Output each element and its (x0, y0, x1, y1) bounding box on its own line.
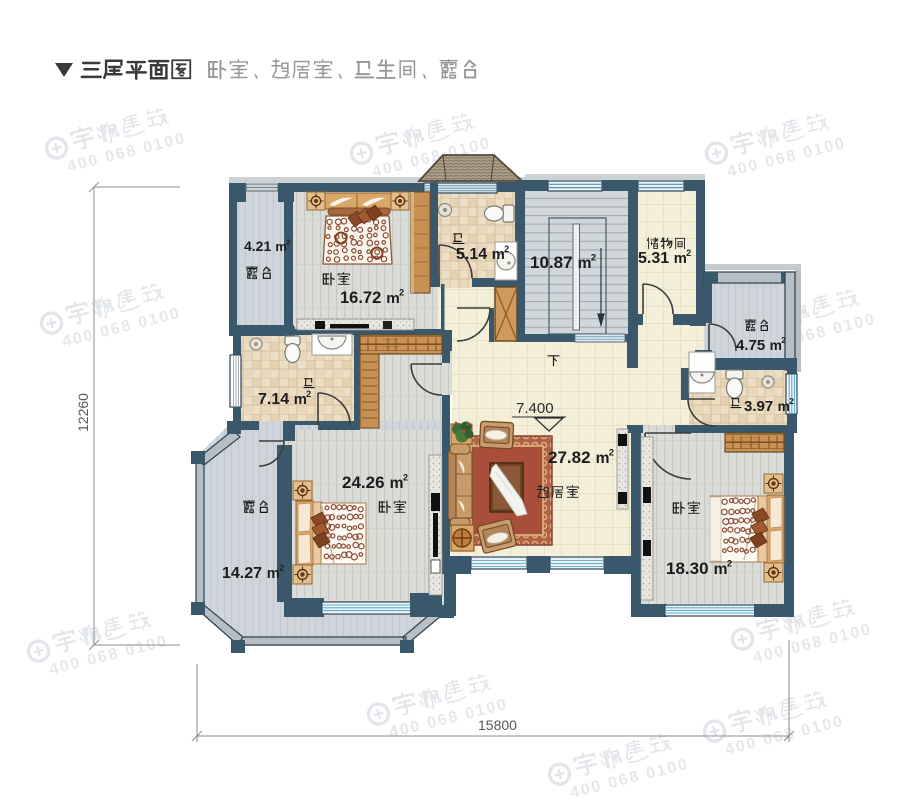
svg-text:2: 2 (279, 563, 284, 573)
svg-text:m: m (578, 255, 592, 272)
svg-text:m: m (294, 392, 307, 408)
svg-text:15800: 15800 (478, 717, 517, 733)
svg-text:5.31: 5.31 (638, 250, 669, 267)
svg-text:4.75: 4.75 (736, 337, 765, 354)
svg-text:m: m (492, 247, 505, 263)
svg-text:m: m (596, 450, 610, 467)
svg-text:m: m (267, 566, 280, 582)
svg-text:18.30: 18.30 (666, 559, 709, 578)
svg-text:7.14: 7.14 (258, 391, 289, 408)
svg-text:16.72: 16.72 (340, 289, 381, 307)
svg-text:3.97: 3.97 (744, 398, 773, 415)
svg-text:24.26: 24.26 (342, 473, 385, 492)
svg-text:5.14: 5.14 (456, 246, 487, 263)
svg-text:12260: 12260 (75, 393, 91, 432)
svg-text:2: 2 (727, 557, 732, 568)
svg-text:m: m (390, 475, 404, 492)
svg-text:m: m (275, 239, 286, 254)
svg-text:2: 2 (591, 251, 596, 262)
svg-text:2: 2 (399, 288, 404, 298)
svg-text:2: 2 (286, 238, 290, 247)
svg-text:4.21: 4.21 (244, 238, 271, 254)
svg-text:m: m (778, 399, 790, 414)
svg-text:2: 2 (781, 336, 786, 345)
svg-text:2: 2 (789, 397, 794, 406)
svg-text:m: m (386, 290, 400, 307)
svg-text:14.27: 14.27 (222, 565, 262, 582)
svg-text:7.400: 7.400 (516, 400, 554, 417)
svg-text:27.82: 27.82 (548, 448, 591, 467)
svg-text:2: 2 (306, 389, 311, 399)
svg-text:m: m (770, 338, 782, 353)
svg-text:m: m (714, 561, 728, 578)
svg-text:10.87: 10.87 (530, 253, 573, 272)
svg-text:2: 2 (686, 248, 691, 258)
svg-text:2: 2 (504, 244, 509, 254)
svg-text:2: 2 (609, 446, 614, 457)
svg-text:2: 2 (403, 471, 408, 482)
svg-text:m: m (674, 251, 687, 267)
